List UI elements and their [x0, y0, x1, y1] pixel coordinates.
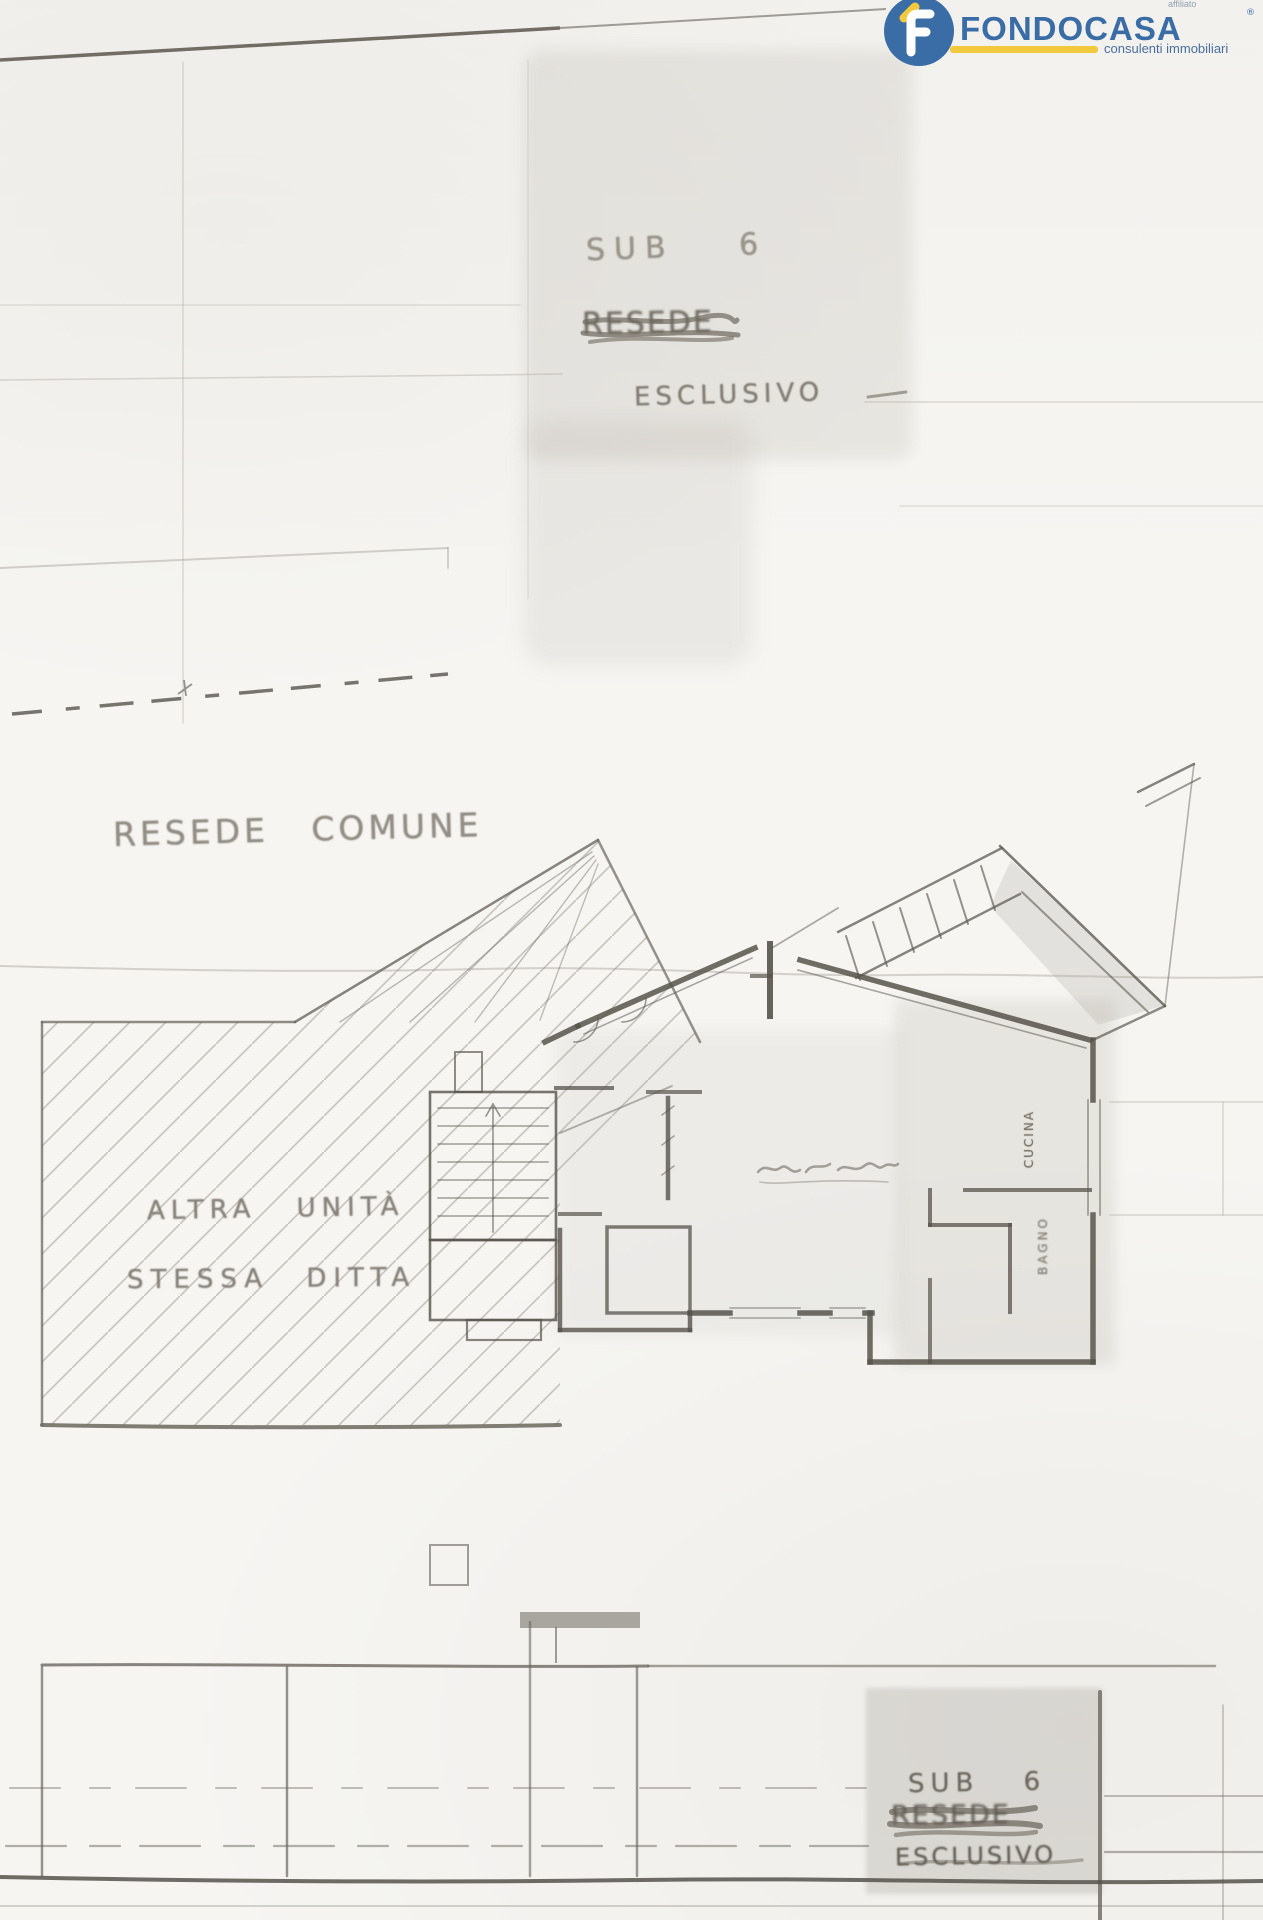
fondocasa-logo: FONDOCASA ® affiliato consulenti immobil… — [878, 0, 1263, 62]
annotation-stessa-ditta: STESSA DITTA — [127, 1263, 416, 1296]
scanned-floor-plan-page: SUB 6 RESEDE ESCLUSIVO RESEDE COMUNE ALT… — [0, 0, 1263, 1920]
annotation-altra-unita: ALTRA UNITÀ — [147, 1192, 405, 1226]
registered-mark: ® — [1246, 8, 1255, 18]
affiliate-label: affiliato — [1168, 0, 1196, 9]
annotation-sub6-top: SUB 6 — [585, 227, 767, 268]
annotation-esclusivo-bottom: ESCLUSIVO — [895, 1841, 1057, 1872]
annotation-sub6-bottom: SUB 6 — [908, 1767, 1047, 1799]
room-label-cucina: CUCINA — [1022, 1110, 1036, 1168]
brand-tagline: consulenti immobiliari — [1104, 41, 1228, 56]
brand-underline — [950, 46, 1098, 53]
fondocasa-logo-icon — [882, 0, 956, 68]
annotation-resede-scrawl-bottom: RESEDE — [891, 1799, 1011, 1831]
annotation-esclusivo-top: ESCLUSIVO — [634, 378, 825, 413]
annotation-resede-scrawl-top: RESEDE — [582, 305, 714, 342]
floor-plan-drawing — [0, 0, 1263, 1920]
room-label-bagno: BAGNO — [1036, 1216, 1050, 1275]
